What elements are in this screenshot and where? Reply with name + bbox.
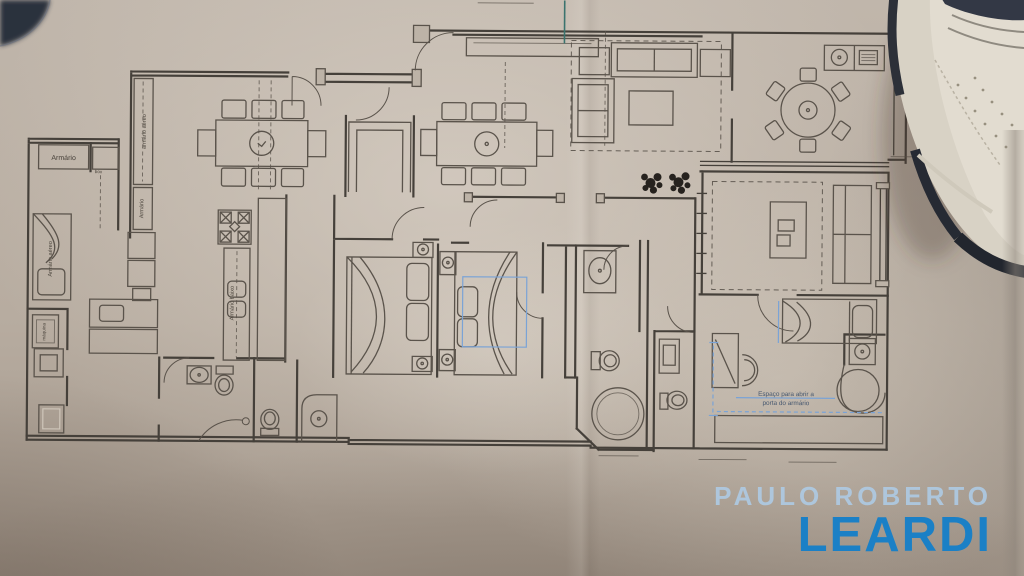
nightstands-1	[412, 242, 433, 371]
label-closet-note-2: porta do armário	[762, 400, 809, 407]
round-chair	[742, 355, 758, 386]
counter-hatched	[257, 198, 286, 360]
bathroom-a	[583, 251, 645, 440]
second-bathroom	[261, 394, 337, 442]
corner-object	[0, 0, 50, 46]
dining-table-1	[197, 100, 326, 187]
balcony-counter	[824, 45, 884, 70]
dining-table-2	[420, 102, 553, 185]
desk	[712, 333, 738, 387]
service-bathroom	[187, 366, 233, 395]
watermark-line-2: LEARDI	[714, 511, 992, 560]
kitchen-cabinets	[89, 78, 159, 353]
teal-pen-mark	[477, 0, 564, 43]
bedroom-right-bed	[782, 299, 876, 344]
label-closet-note-1: Espaço para abrir a	[758, 391, 814, 398]
label-washing-machine: máquina	[41, 323, 46, 341]
blue-annotations	[462, 277, 884, 417]
label-kitchen-upper-cabinet: armário aéreo	[142, 114, 148, 149]
label-kitchen-cabinet: Armário	[139, 199, 145, 219]
kitchen-counter	[223, 248, 250, 360]
sideboard	[466, 38, 598, 57]
bedroom-2-bed	[454, 252, 517, 375]
label-closet-top: Armário	[51, 155, 76, 162]
tv-room	[712, 181, 872, 290]
paper-edge	[1002, 130, 1024, 576]
maid-room	[33, 175, 101, 300]
bathroom-b	[659, 339, 687, 409]
plan-labels: Armário box armário aéreo Armário Armári…	[41, 113, 816, 407]
cooktop	[218, 210, 251, 244]
plant-icons	[641, 172, 691, 194]
watermark-line-1: PAULO ROBERTO	[714, 483, 992, 509]
label-kitchen-low-cabinet: Armário baixo	[230, 286, 236, 321]
laundry-area	[32, 315, 65, 433]
label-box: box	[95, 169, 103, 174]
wardrobe-hatched	[715, 416, 883, 444]
shower-sink	[849, 338, 875, 364]
balcony-table	[764, 68, 851, 153]
watermark: PAULO ROBERTO LEARDI	[714, 483, 992, 560]
floor-plan-photo: Armário box armário aéreo Armário Armári…	[0, 0, 1024, 576]
shower-round	[837, 364, 885, 413]
hall-closet	[348, 122, 410, 192]
label-maid-cabinet: Armário aéreo	[48, 241, 54, 276]
nightstands-2	[439, 252, 456, 371]
walls	[27, 23, 907, 453]
